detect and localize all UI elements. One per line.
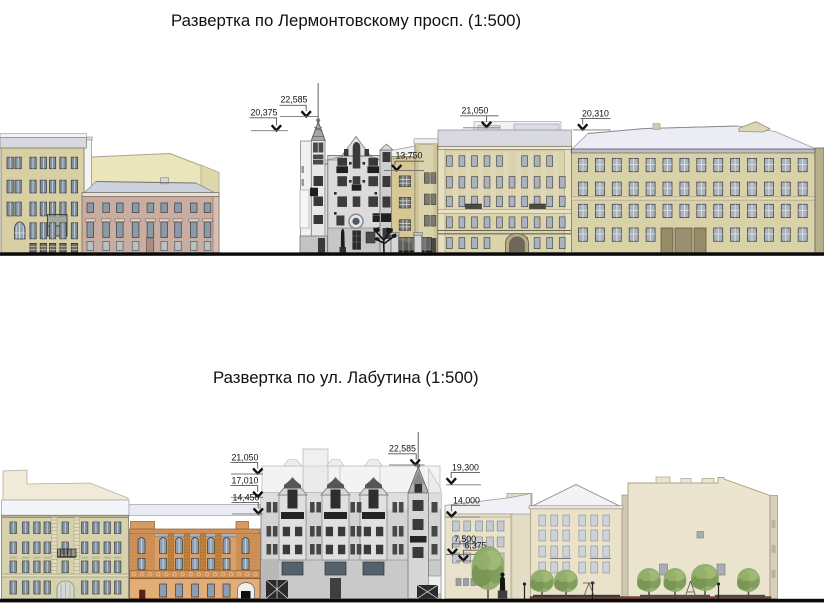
svg-text:14,450: 14,450 — [233, 493, 260, 503]
svg-text:Развертка по ул. Лабутина (1:5: Развертка по ул. Лабутина (1:500) — [213, 368, 479, 387]
svg-text:22,585: 22,585 — [281, 94, 308, 104]
svg-text:13,750: 13,750 — [396, 151, 423, 161]
svg-text:Развертка по Лермонтовскому пр: Развертка по Лермонтовскому просп. (1:50… — [171, 11, 521, 30]
svg-text:21,050: 21,050 — [462, 105, 489, 115]
svg-text:17,010: 17,010 — [232, 475, 259, 485]
svg-text:14,000: 14,000 — [453, 495, 480, 505]
svg-text:19,300: 19,300 — [452, 462, 479, 472]
svg-text:20,310: 20,310 — [582, 109, 609, 119]
svg-text:21,050: 21,050 — [232, 452, 259, 462]
svg-text:20,375: 20,375 — [251, 107, 278, 117]
svg-text:22,585: 22,585 — [389, 443, 416, 453]
